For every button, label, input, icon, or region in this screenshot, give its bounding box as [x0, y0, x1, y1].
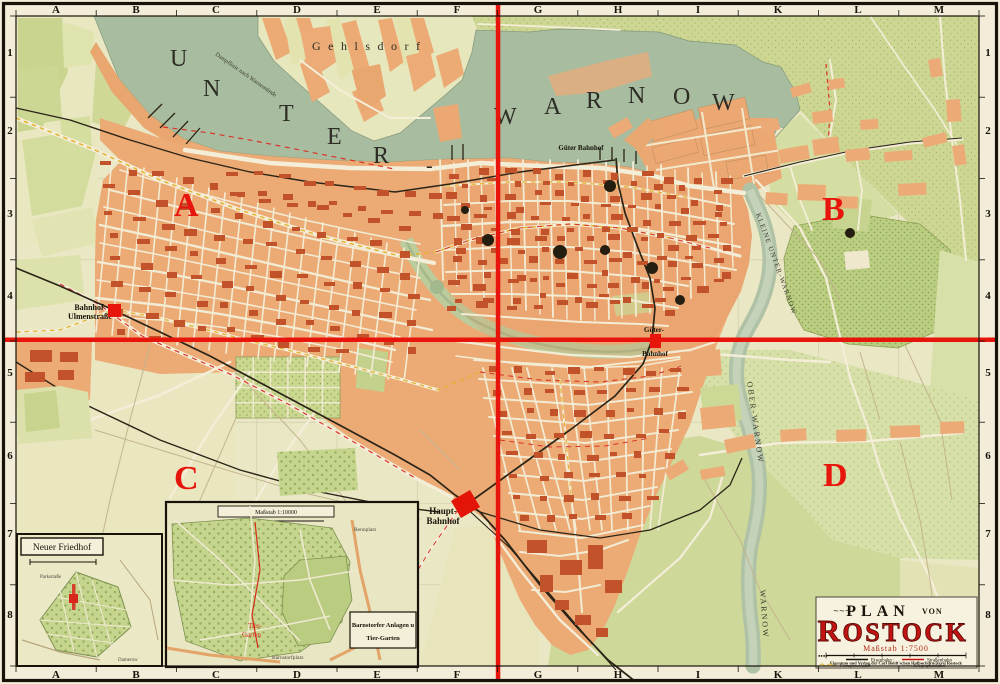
svg-text:A: A: [174, 187, 199, 224]
svg-text:4: 4: [7, 290, 13, 302]
svg-text:Barnstorfplatz: Barnstorfplatz: [272, 654, 304, 661]
svg-text:N: N: [203, 76, 220, 102]
svg-text:Haupt-: Haupt-: [429, 506, 457, 516]
svg-text:B: B: [132, 669, 140, 681]
svg-text:T: T: [279, 101, 294, 127]
svg-text:C: C: [212, 4, 220, 16]
svg-text:R: R: [586, 88, 602, 114]
svg-text:2: 2: [985, 125, 991, 137]
svg-text:Damerow: Damerow: [118, 658, 138, 663]
svg-text:Barnstorfer Anlagen u: Barnstorfer Anlagen u: [352, 622, 415, 629]
svg-text:K: K: [774, 4, 783, 16]
svg-text:6: 6: [7, 450, 13, 462]
svg-text:3: 3: [7, 208, 13, 220]
svg-text:E: E: [327, 124, 342, 150]
svg-text:-: -: [426, 155, 433, 177]
svg-text:D: D: [293, 669, 301, 681]
svg-text:Parkstraße: Parkstraße: [40, 575, 62, 580]
svg-text:H: H: [614, 4, 623, 16]
svg-text:Gehlsdorf: Gehlsdorf: [312, 39, 428, 53]
svg-text:4: 4: [985, 290, 991, 302]
svg-text:1: 1: [7, 47, 13, 59]
svg-text:I: I: [696, 4, 700, 16]
svg-text:Güter-: Güter-: [644, 326, 665, 334]
svg-text:E: E: [373, 4, 380, 16]
svg-text:U: U: [170, 46, 187, 72]
svg-text:O: O: [673, 84, 690, 110]
svg-text:A: A: [52, 669, 60, 681]
svg-text:Maßstab 1:10000: Maßstab 1:10000: [255, 509, 297, 516]
svg-text:2: 2: [7, 125, 13, 137]
svg-text:Ulmenstraße: Ulmenstraße: [68, 312, 112, 321]
svg-text:D: D: [293, 4, 301, 16]
svg-text:L: L: [854, 669, 861, 681]
svg-text:F: F: [454, 669, 461, 681]
svg-text:Tier-: Tier-: [248, 622, 262, 630]
svg-text:K: K: [774, 669, 783, 681]
svg-text:C: C: [174, 460, 199, 497]
svg-text:M: M: [934, 669, 945, 681]
svg-text:D: D: [823, 457, 848, 494]
svg-text:G: G: [534, 669, 543, 681]
svg-text:8: 8: [7, 609, 13, 621]
svg-text:A: A: [544, 94, 562, 120]
svg-text:Güter Bahnhof: Güter Bahnhof: [558, 144, 604, 152]
svg-text:8: 8: [985, 609, 991, 621]
svg-text:L: L: [854, 4, 861, 16]
svg-text:B: B: [132, 4, 140, 16]
svg-text:N: N: [628, 83, 645, 109]
svg-text:5: 5: [985, 367, 991, 379]
svg-text:●●●●: ●●●●: [818, 653, 828, 658]
svg-text:Bahnhof: Bahnhof: [426, 516, 460, 526]
svg-text:Bahnhof: Bahnhof: [74, 303, 104, 312]
svg-text:W: W: [712, 90, 735, 116]
svg-text:3: 3: [985, 208, 991, 220]
svg-text:G: G: [534, 4, 543, 16]
svg-text:Neuer Friedhof: Neuer Friedhof: [33, 542, 92, 553]
svg-text:B: B: [822, 191, 845, 228]
svg-text:Tier-Garten: Tier-Garten: [366, 635, 400, 642]
svg-text:Bahnhof: Bahnhof: [642, 350, 668, 358]
svg-text:7: 7: [7, 528, 13, 540]
svg-text:R: R: [373, 143, 389, 169]
svg-text:F: F: [454, 4, 461, 16]
svg-text:Maßstab 1:7500: Maßstab 1:7500: [863, 644, 929, 653]
svg-text:5: 5: [7, 367, 13, 379]
svg-text:ROSTOCK: ROSTOCK: [818, 613, 969, 648]
svg-text:E: E: [373, 669, 380, 681]
svg-text:6: 6: [985, 450, 991, 462]
svg-text:H: H: [614, 669, 623, 681]
svg-text:C: C: [212, 669, 220, 681]
svg-text:A: A: [52, 4, 60, 16]
svg-text:7: 7: [985, 528, 991, 540]
svg-text:Garten: Garten: [242, 631, 262, 639]
svg-text:I: I: [696, 669, 700, 681]
svg-text:Rennplatz: Rennplatz: [354, 527, 377, 533]
svg-text:1: 1: [985, 47, 991, 59]
svg-text:VON: VON: [922, 607, 943, 616]
svg-text:M: M: [934, 4, 945, 16]
